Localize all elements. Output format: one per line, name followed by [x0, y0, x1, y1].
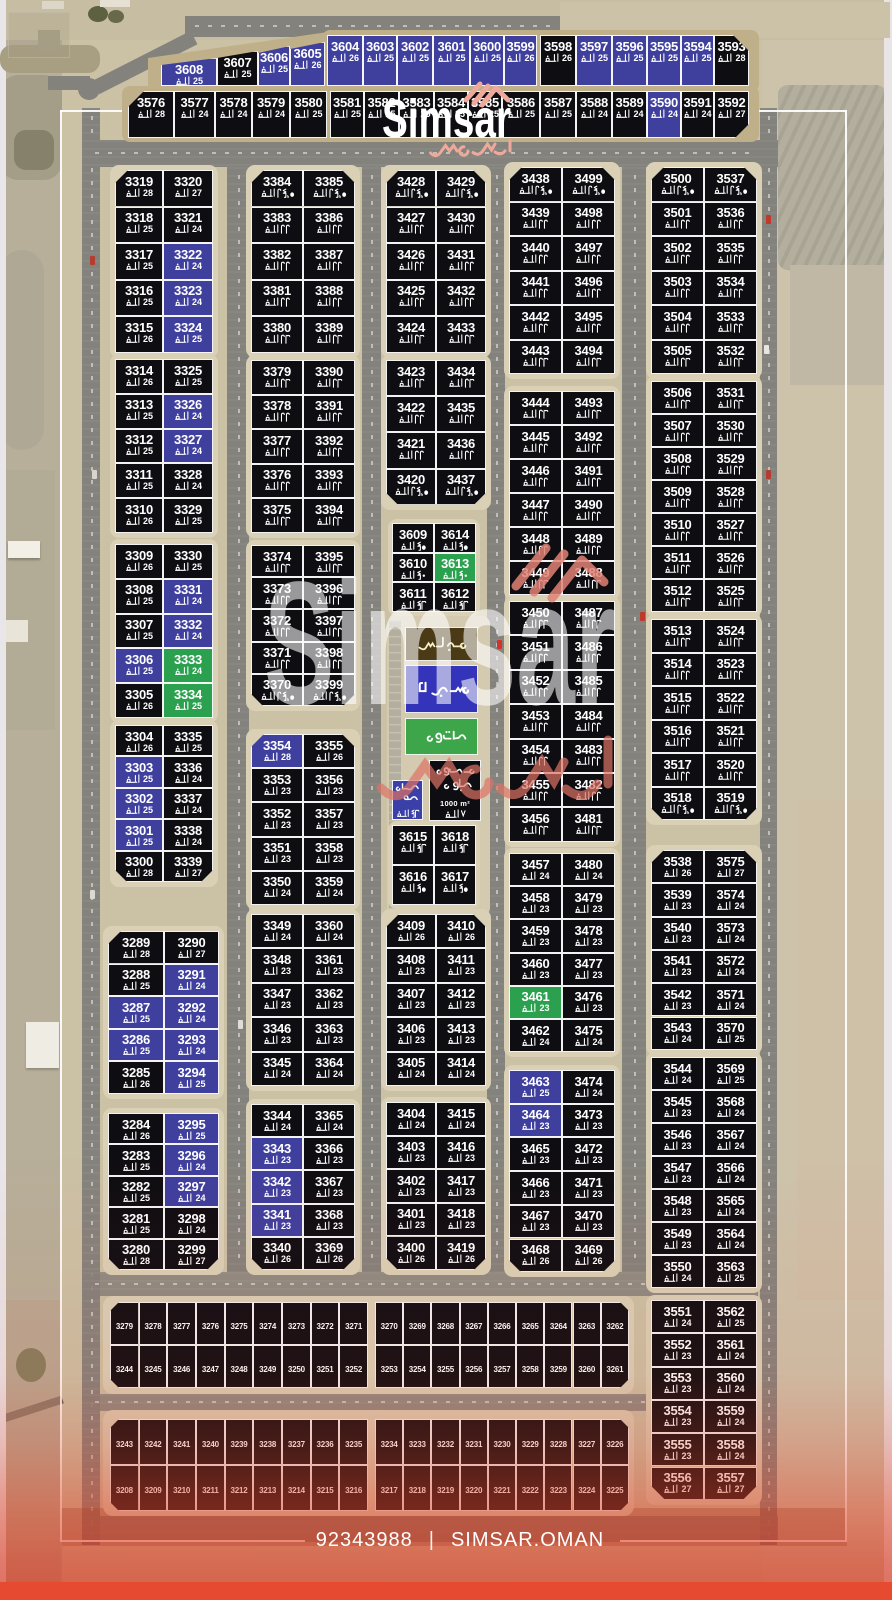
- svg-text:Simsar: Simsar: [382, 89, 511, 149]
